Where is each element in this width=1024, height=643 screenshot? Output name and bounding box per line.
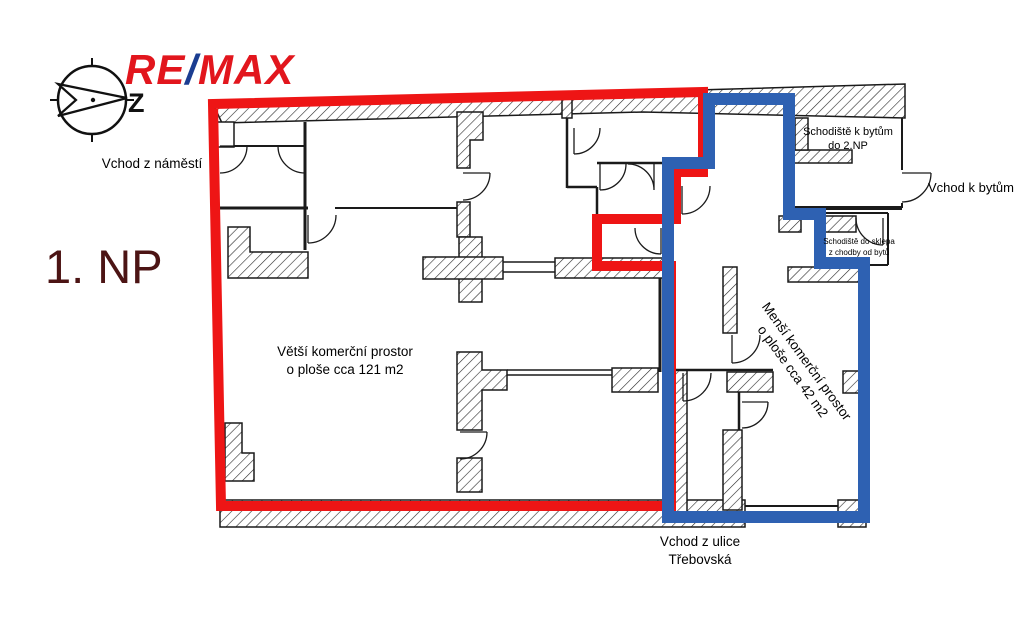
floor-plan-page: Z RE/MAX 1. NP Vchod z náměstí Větší kom… (0, 0, 1024, 643)
floor-label: 1. NP (45, 240, 163, 293)
wall-right-space-v2 (723, 430, 742, 510)
label-entrance-street-line1: Vchod z ulice (660, 534, 740, 549)
label-entrance-apartments: Vchod k bytům (928, 180, 1014, 195)
label-larger-space-line2: o ploše cca 121 m2 (286, 362, 403, 377)
wall-right-space-v1 (723, 267, 737, 333)
remax-logo: RE/MAX (125, 46, 296, 93)
logo-re: RE (125, 46, 186, 93)
label-stairs-basement-line1: Schodiště do sklepa (823, 237, 895, 246)
label-stairs-basement-line2: z chodby od bytů (829, 248, 889, 257)
logo-max: MAX (198, 46, 296, 93)
wall-basement-room (823, 216, 856, 232)
floor-plan-svg: Z RE/MAX 1. NP Vchod z náměstí Větší kom… (0, 0, 1024, 643)
label-entrance-square: Vchod z náměstí (102, 156, 203, 171)
wall-right-space-top (788, 267, 862, 282)
label-larger-space-line1: Větší komerční prostor (277, 344, 413, 359)
wall-seg (457, 202, 470, 237)
label-stairs-apartments-line2: do 2.NP (828, 140, 868, 152)
wall-partition-hatch (612, 368, 658, 392)
wall-cross-h (423, 257, 503, 279)
compass-dot (91, 98, 95, 102)
wall-right-space-h1 (727, 372, 773, 392)
wall-column-center-low (457, 458, 482, 492)
wall-top-mid-nub (562, 98, 572, 118)
label-entrance-street-line2: Třebovská (668, 552, 732, 567)
label-stairs-apartments-line1: Schodiště k bytům (803, 126, 893, 138)
